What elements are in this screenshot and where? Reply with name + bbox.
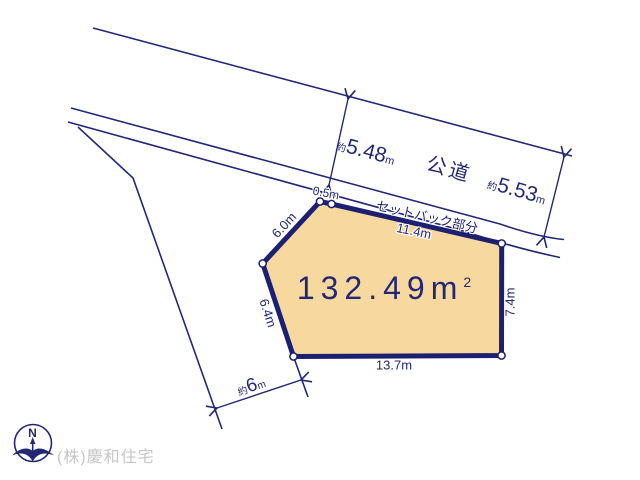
company-watermark: (株)慶和住宅 [57,450,155,466]
plot-area-unit: m [431,272,464,304]
road-upper-edge-line [93,28,572,156]
vertex-dot [290,353,297,360]
dim-right-label: 7.4m [504,288,517,317]
vertex-dot [498,240,505,247]
plot-edge-extension-line [294,357,309,398]
dim-bottom-text: 13.7m [376,359,412,372]
vertex-dot [259,260,266,267]
plot-area-sup: 2 [463,275,471,289]
west-boundary-line [78,127,222,429]
site-plan: N 約5.48m 公道 約5.53m 0.5m セットバック部分 11.4m 6… [0,0,640,480]
site-plan-canvas: N [0,0,640,480]
plot-area-value: 132.49 [297,272,431,304]
road-width-right-arrow [544,157,564,237]
compass-north-icon: N [12,425,54,462]
dim-right-text: 7.4m [504,288,517,317]
dim-bottom-label: 13.7m [376,359,412,372]
vertex-dot [498,352,505,359]
plot-area-label: 132.49m2 [297,272,471,304]
